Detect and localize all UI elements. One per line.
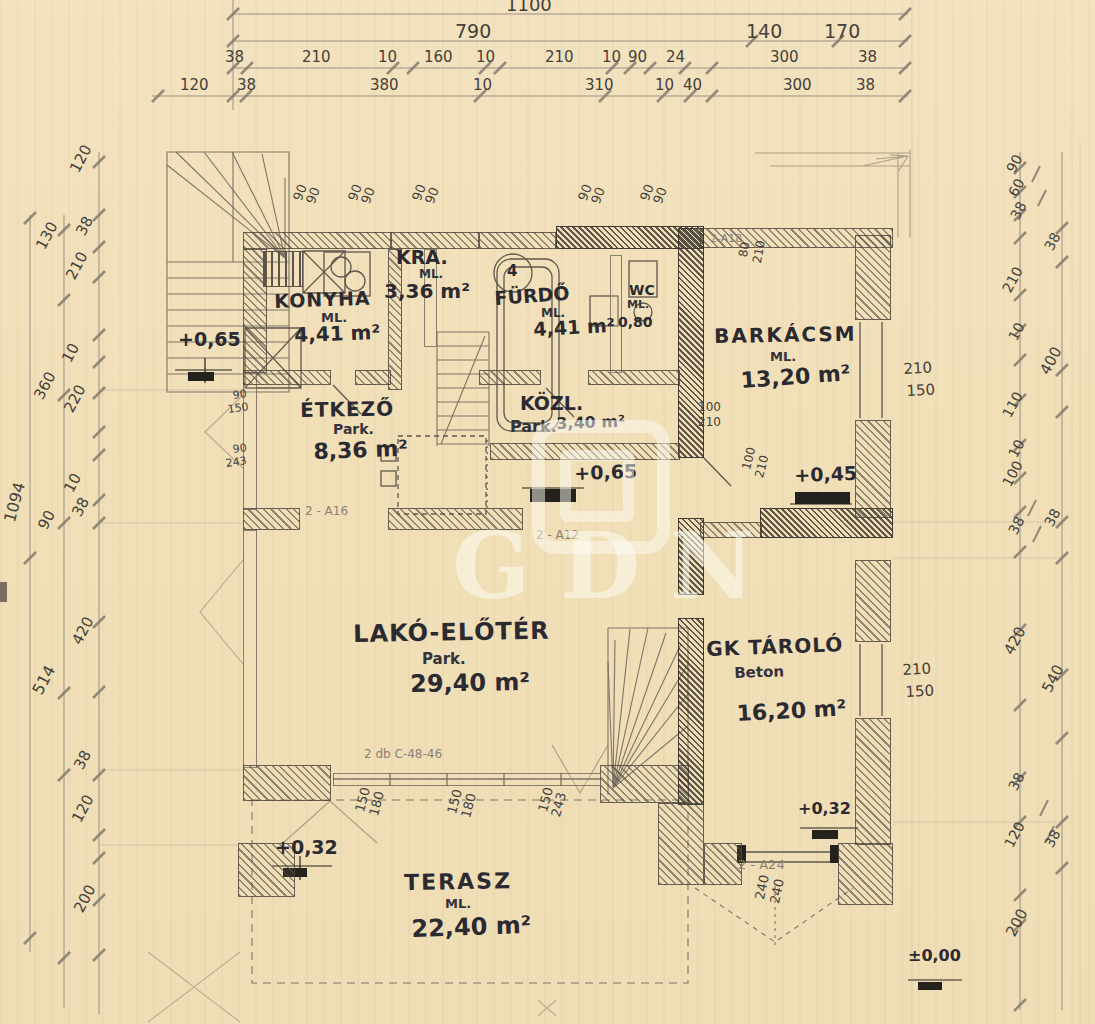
wall [243,232,391,249]
dim-top: 160 [424,50,453,65]
scan-edge-mark [0,582,7,602]
hall-door-bar [530,489,576,502]
room-name-barkacs: BARKÁCSM [714,324,857,346]
window-band [333,773,601,786]
wall [838,843,893,905]
room-name-kozl: KÖZL. [520,394,583,413]
wall-label: 2-A18 [710,233,742,244]
wall [700,522,762,538]
level-mark: +0,65 [574,462,637,483]
wall [243,765,331,801]
gk-door-bar [795,492,850,504]
level-mark: +0,32 [798,801,851,817]
door-dim: 100 [698,401,721,413]
wall [479,232,556,249]
room-sub: Park. [422,652,466,667]
dim-top: 10 [476,50,495,65]
wall [388,508,523,530]
dim-top: 1100 [506,0,552,14]
window-splays [200,395,243,664]
kitchen-window [263,251,303,287]
room-sub: Beton [734,664,784,681]
dimension-chain-lines [30,0,1080,1024]
dim-top: 90 [628,50,647,65]
level-mark: ±0,00 [908,948,961,964]
wall [479,370,541,385]
level-mark: +0,32 [275,838,338,857]
room-area: 3,40 m² [556,414,625,432]
dim-top: 38 [225,50,244,65]
wall-label: 2 - A12 [536,529,579,541]
window-dim: 90 [232,442,247,455]
level-mark: +0,45 [794,464,857,485]
level-mark: +0,65 [178,330,241,349]
wall [855,420,891,518]
room-sub: ML. [627,299,649,310]
roof-overhang [755,150,910,238]
room-name-etkezo: ÉTKEZŐ [300,398,394,420]
room-name-terasz: TERASZ [404,870,512,894]
dim-top: 790 [455,22,491,41]
room-area: 29,40 m² [410,670,530,696]
dim-top: 10 [655,78,674,93]
dim-top: 38 [858,50,877,65]
wall [855,235,891,320]
wall [600,765,689,803]
room-sub: Park. [333,422,374,436]
wall-label: 2 - A16 [305,505,348,517]
stair-center [437,332,489,446]
window-dim: 210 [903,361,932,377]
window-dim: 150 [906,383,935,399]
dim-top: 38 [237,78,256,93]
dim-top: 24 [666,50,685,65]
beam-note: 2 db C-48-46 [364,748,442,760]
window-dim: 150 [905,684,934,700]
dim-top: 300 [770,50,799,65]
wall [855,718,891,845]
room-sub: ML. [770,350,796,363]
room-sub: Park. [510,419,557,435]
dim-top: 380 [370,78,399,93]
room-name-kamra: KRA. [396,248,448,267]
room-name-konyha: KONYHA [274,289,371,311]
dim-top: 210 [302,50,331,65]
dim-top: 310 [585,78,614,93]
floorplan-sheet: 1100 790 140 170 38 210 10 160 10 210 10… [0,0,1095,1024]
window-dim: 90 [232,388,247,401]
door-dim: 210 [751,239,767,264]
wall-label: 2 - A24 [738,858,785,871]
wall [388,249,402,390]
room-sub: ML. [445,897,471,910]
room-area: 4,41 m² [533,316,616,339]
wall [704,843,742,885]
room-name-furdo: FÜRDŐ [494,284,570,308]
dim-top: 10 [378,50,397,65]
window-dim: 210 [902,662,931,678]
room-area: 8,36 m² [313,438,408,463]
wall [678,618,704,805]
wall [355,370,391,385]
wall [490,443,680,460]
dim-top: 170 [824,22,860,41]
room-name-lako-eloter: LAKÓ-ELŐTÉR [353,619,550,646]
room-area: 16,20 m² [736,697,847,725]
wall [855,560,891,642]
window-dim: 243 [225,455,247,469]
dim-top: 10 [473,78,492,93]
dim-top: 300 [783,78,812,93]
dim-top: 38 [856,78,875,93]
wall [243,370,331,385]
dim-top: 10 [602,50,621,65]
window-dim: 150 [227,401,249,415]
pencil-linework [0,0,1095,1024]
wall [658,803,704,885]
dim-top: 140 [746,22,782,41]
room-area: 22,40 m² [411,913,532,941]
door-dim: 210 [698,416,721,428]
wall [588,370,680,385]
room-name-gk-tarolo: GK TÁROLÓ [706,634,844,659]
dim-top: 40 [683,78,702,93]
dim-top: 210 [545,50,574,65]
dim-top: 120 [180,78,209,93]
room-area: 4,41 m² [294,322,381,345]
wall [243,530,257,768]
room-area: 3,36 m² [384,281,470,301]
dimension-ticks [24,8,1068,1011]
bath-room-number: 4 [507,264,517,279]
room-area: 0,80 [618,315,653,329]
wall [243,508,300,530]
room-name-wc: WC [629,283,655,297]
